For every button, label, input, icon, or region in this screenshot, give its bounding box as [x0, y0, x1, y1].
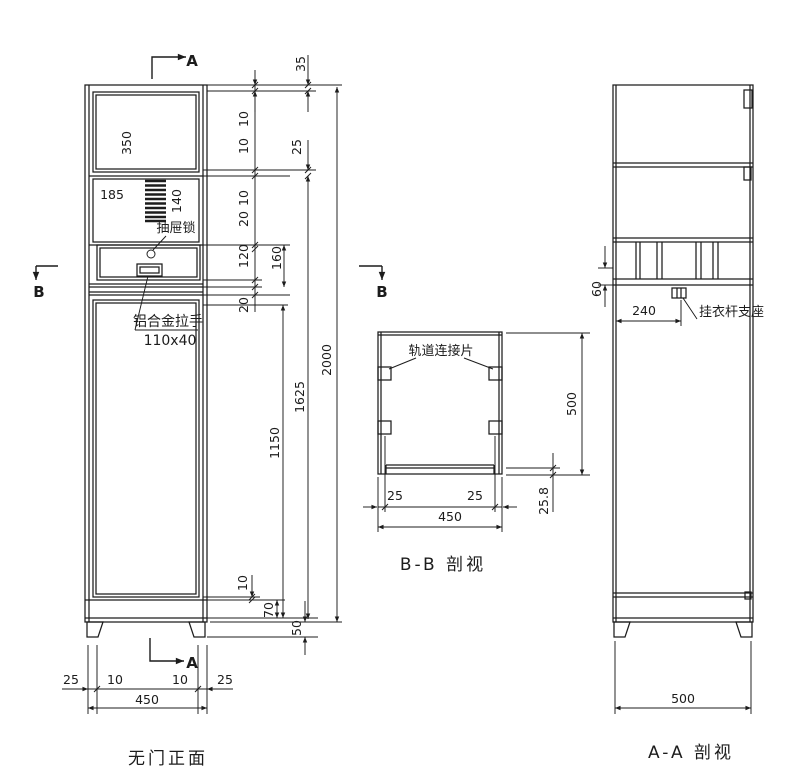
dim-10-bottom: 10 [235, 575, 250, 591]
track-leader-left [389, 358, 416, 369]
section-marker-a-top: A [186, 52, 198, 70]
top-compartment [93, 92, 199, 172]
drawer-front [97, 245, 200, 280]
drawer-lock-symbol [147, 250, 155, 258]
section-a-top-bracket [152, 57, 168, 79]
dim-1150: 1150 [267, 427, 282, 459]
caption-aa-section: A-A 剖视 [648, 743, 734, 763]
label-rail-support: 挂衣杆支座 [699, 304, 764, 320]
dim-20-b: 20 [236, 297, 251, 313]
dim-25-chain: 25 [289, 139, 304, 155]
cabinet-drawing-svg: A A B B 350 185 140 抽屉锁 铝合金拉手 110x40 35 … [0, 0, 790, 773]
dim-bb-25-right: 25 [467, 488, 483, 503]
label-drawer-lock: 抽屉锁 [156, 220, 195, 236]
dim-70: 70 [261, 602, 276, 618]
dim-10-bottom-right: 10 [172, 672, 188, 687]
hinge-top [744, 90, 752, 108]
aa-right-foot [736, 622, 752, 637]
dim-bb-450: 450 [438, 509, 462, 524]
dim-50: 50 [289, 620, 304, 636]
dim-bb-25-8: 25.8 [536, 487, 551, 515]
label-handle: 铝合金拉手 [133, 314, 203, 330]
section-marker-b-left: B [33, 283, 44, 301]
dim-20-a: 20 [236, 211, 251, 227]
dim-35: 35 [293, 56, 308, 72]
right-foot [189, 622, 205, 637]
dim-bb-25-left: 25 [387, 488, 403, 503]
left-foot [87, 622, 103, 637]
dim-aa-500: 500 [671, 691, 695, 706]
dim-10-c: 10 [236, 190, 251, 206]
dim-185: 185 [100, 187, 124, 202]
dim-2000: 2000 [319, 344, 334, 376]
track-leader-right [464, 358, 493, 369]
dim-10-bottom-left: 10 [107, 672, 123, 687]
dim-160: 160 [269, 246, 284, 270]
dim-350: 350 [119, 131, 134, 155]
dim-bb-500: 500 [564, 392, 579, 416]
support-leader [683, 298, 697, 319]
track-clip-bottom-right [489, 421, 502, 434]
rail-support-bracket [672, 288, 686, 298]
caption-bb-section: B-B 剖视 [400, 555, 486, 575]
track-clip-top-right [489, 367, 502, 380]
dim-120: 120 [236, 244, 251, 268]
dim-aa-60: 60 [589, 281, 604, 297]
front-view-outline [85, 85, 207, 637]
label-handle-size: 110x40 [144, 333, 197, 349]
dim-10-b: 10 [236, 138, 251, 154]
vent-louver [145, 181, 166, 221]
aa-left-foot [614, 622, 630, 637]
dim-1625: 1625 [292, 381, 307, 413]
technical-drawing-page: A A B B 350 185 140 抽屉锁 铝合金拉手 110x40 35 … [0, 0, 790, 773]
aa-view-outline [613, 85, 753, 637]
rail-slats [636, 242, 718, 279]
aa-body [613, 85, 753, 622]
track-clip-bottom-left [378, 421, 391, 434]
dim-10-a: 10 [236, 111, 251, 127]
dim-140: 140 [169, 189, 184, 213]
dim-25-bottom-left: 25 [63, 672, 79, 687]
text-layer: A A B B 350 185 140 抽屉锁 铝合金拉手 110x40 35 … [33, 52, 764, 769]
section-a-bottom-bracket [150, 638, 166, 661]
section-marker-b-right: B [376, 283, 387, 301]
label-track-clip: 轨道连接片 [408, 343, 473, 359]
drawer-handle [137, 264, 162, 276]
section-marker-a-bottom: A [186, 654, 198, 672]
dim-25-bottom-right: 25 [217, 672, 233, 687]
caption-front-view: 无门正面 [128, 749, 208, 769]
dim-450-front: 450 [135, 692, 159, 707]
dim-aa-240: 240 [632, 303, 656, 318]
cabinet-body [85, 85, 207, 622]
